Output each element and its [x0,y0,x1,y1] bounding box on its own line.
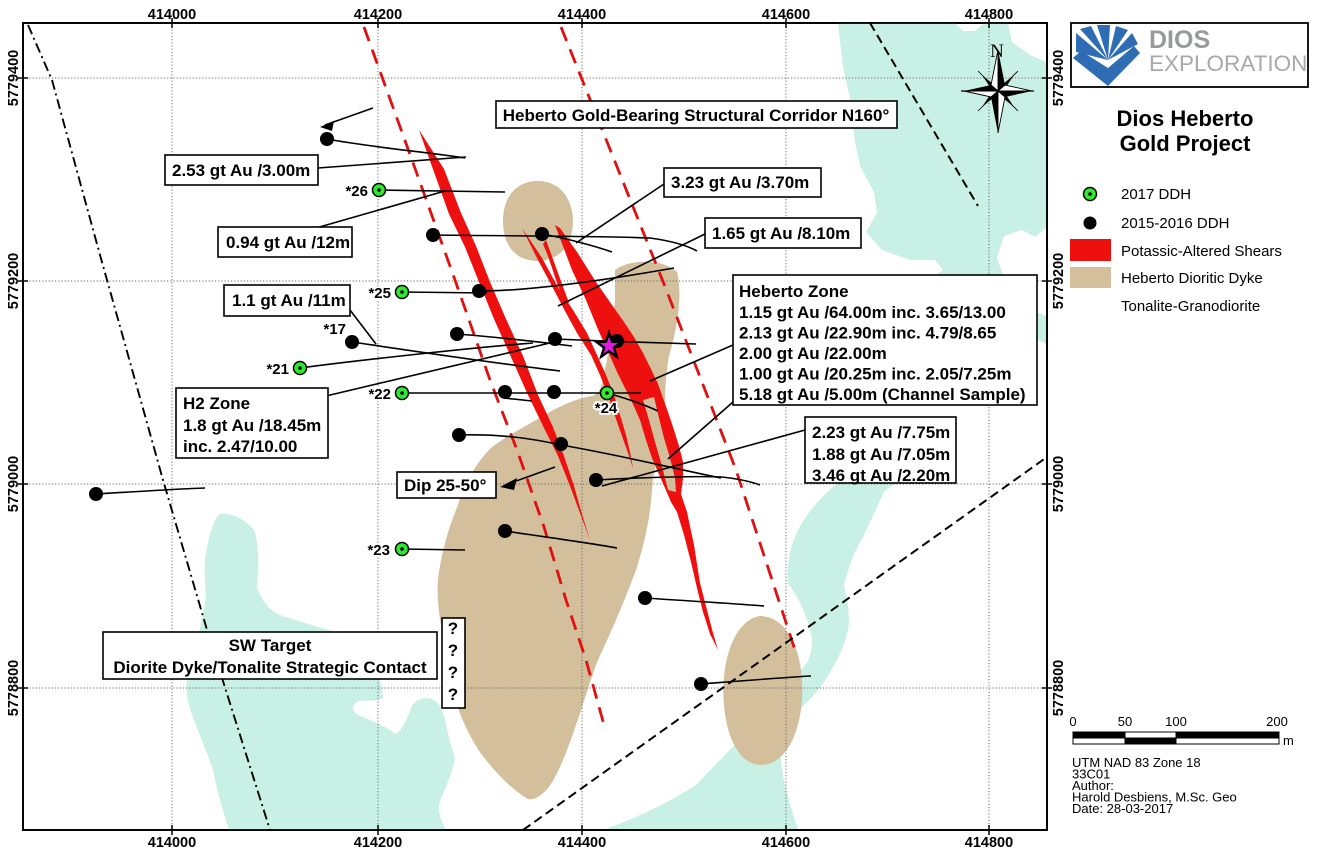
svg-text:?: ? [448,685,458,704]
svg-text:*21: *21 [266,361,289,378]
svg-text:H2 Zone: H2 Zone [183,394,250,413]
svg-text:Diorite Dyke/Tonalite Strategi: Diorite Dyke/Tonalite Strategic Contact [113,658,427,677]
svg-text:5779000: 5779000 [6,456,22,512]
svg-text:2.53 gt Au /3.00m: 2.53 gt Au /3.00m [172,161,310,180]
svg-text:1.1 gt Au /11m: 1.1 gt Au /11m [232,291,346,310]
svg-text:*25: *25 [368,285,391,302]
svg-text:414800: 414800 [965,7,1013,23]
svg-text:DIOS: DIOS [1149,26,1210,54]
svg-text:*26: *26 [345,183,368,200]
svg-text:0.94 gt Au /12m: 0.94 gt Au /12m [226,233,350,252]
svg-text:*17: *17 [323,321,346,338]
svg-text:2.23 gt Au /7.75m: 2.23 gt Au /7.75m [812,423,950,442]
svg-text:*24: *24 [595,400,618,417]
svg-text:inc. 2.47/10.00: inc. 2.47/10.00 [183,437,297,456]
svg-text:414000: 414000 [148,7,196,23]
svg-text:m: m [1283,733,1294,748]
svg-text:Heberto Zone: Heberto Zone [739,282,849,301]
svg-text:2.13 gt Au /22.90m inc. 4.79/8: 2.13 gt Au /22.90m inc. 4.79/8.65 [739,324,996,343]
svg-text:Heberto Gold-Bearing Structura: Heberto Gold-Bearing Structural Corridor… [503,106,890,125]
svg-text:0: 0 [1069,714,1076,729]
svg-text:5779200: 5779200 [1051,253,1067,309]
svg-text:414200: 414200 [354,7,402,23]
svg-text:5778800: 5778800 [6,660,22,716]
svg-text:414000: 414000 [148,835,196,851]
svg-text:1.88 gt Au /7.05m: 1.88 gt Au /7.05m [812,445,950,464]
svg-text:?: ? [448,619,458,638]
svg-text:?: ? [448,641,458,660]
svg-text:*22: *22 [368,386,391,403]
svg-text:2.00 gt Au /22.00m: 2.00 gt Au /22.00m [739,344,887,363]
svg-text:3.46 gt Au /2.20m: 3.46 gt Au /2.20m [812,466,950,485]
svg-text:5779400: 5779400 [1051,50,1067,106]
svg-text:Tonalite-Granodiorite: Tonalite-Granodiorite [1121,298,1260,315]
svg-text:1.65 gt Au /8.10m: 1.65 gt Au /8.10m [712,224,850,243]
svg-text:5779400: 5779400 [6,50,22,106]
svg-text:*23: *23 [367,542,390,559]
svg-text:414400: 414400 [558,835,606,851]
svg-text:5779200: 5779200 [6,253,22,309]
svg-text:3.23 gt Au /3.70m: 3.23 gt Au /3.70m [671,173,809,192]
svg-text:5.18 gt Au /5.00m (Channel Sam: 5.18 gt Au /5.00m (Channel Sample) [739,385,1026,404]
svg-text:414400: 414400 [558,7,606,23]
svg-text:SW Target: SW Target [229,636,312,655]
svg-text:1.8 gt Au /18.45m: 1.8 gt Au /18.45m [183,416,321,435]
svg-text:1.00 gt Au /20.25m inc. 2.05/7: 1.00 gt Au /20.25m inc. 2.05/7.25m [739,365,1011,384]
svg-text:2017 DDH: 2017 DDH [1121,186,1191,203]
svg-text:5778800: 5778800 [1051,660,1067,716]
svg-text:100: 100 [1165,714,1187,729]
svg-text:Potassic-Altered Shears: Potassic-Altered Shears [1121,243,1282,260]
svg-text:?: ? [448,663,458,682]
svg-text:EXPLORATION: EXPLORATION [1149,51,1307,76]
svg-text:Gold Project: Gold Project [1120,131,1251,156]
svg-text:Dios Heberto: Dios Heberto [1117,106,1254,131]
svg-text:1.15 gt Au /64.00m inc. 3.65/1: 1.15 gt Au /64.00m inc. 3.65/13.00 [739,303,1006,322]
svg-text:414600: 414600 [762,835,810,851]
svg-text:5779000: 5779000 [1051,456,1067,512]
svg-text:414200: 414200 [354,835,402,851]
svg-text:2015-2016 DDH: 2015-2016 DDH [1121,215,1229,232]
svg-text:414600: 414600 [762,7,810,23]
svg-text:Date: 28-03-2017: Date: 28-03-2017 [1072,801,1173,816]
svg-text:200: 200 [1266,714,1288,729]
svg-text:Dip 25-50°: Dip 25-50° [404,476,487,495]
svg-text:50: 50 [1118,714,1132,729]
svg-text:Heberto Dioritic Dyke: Heberto Dioritic Dyke [1121,270,1263,287]
svg-text:414800: 414800 [965,835,1013,851]
